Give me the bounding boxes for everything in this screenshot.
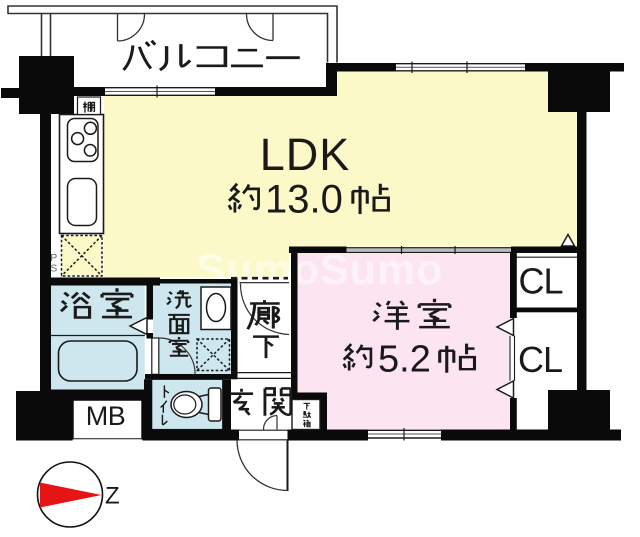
- svg-text:LDK: LDK: [260, 129, 351, 180]
- svg-text:5.2: 5.2: [378, 339, 431, 381]
- svg-text:Z: Z: [105, 483, 120, 510]
- svg-text:MB: MB: [86, 401, 126, 431]
- svg-text:CL: CL: [518, 339, 562, 380]
- svg-text:CL: CL: [518, 261, 562, 302]
- svg-text:13.0: 13.0: [265, 178, 343, 222]
- svg-text:S: S: [50, 263, 57, 275]
